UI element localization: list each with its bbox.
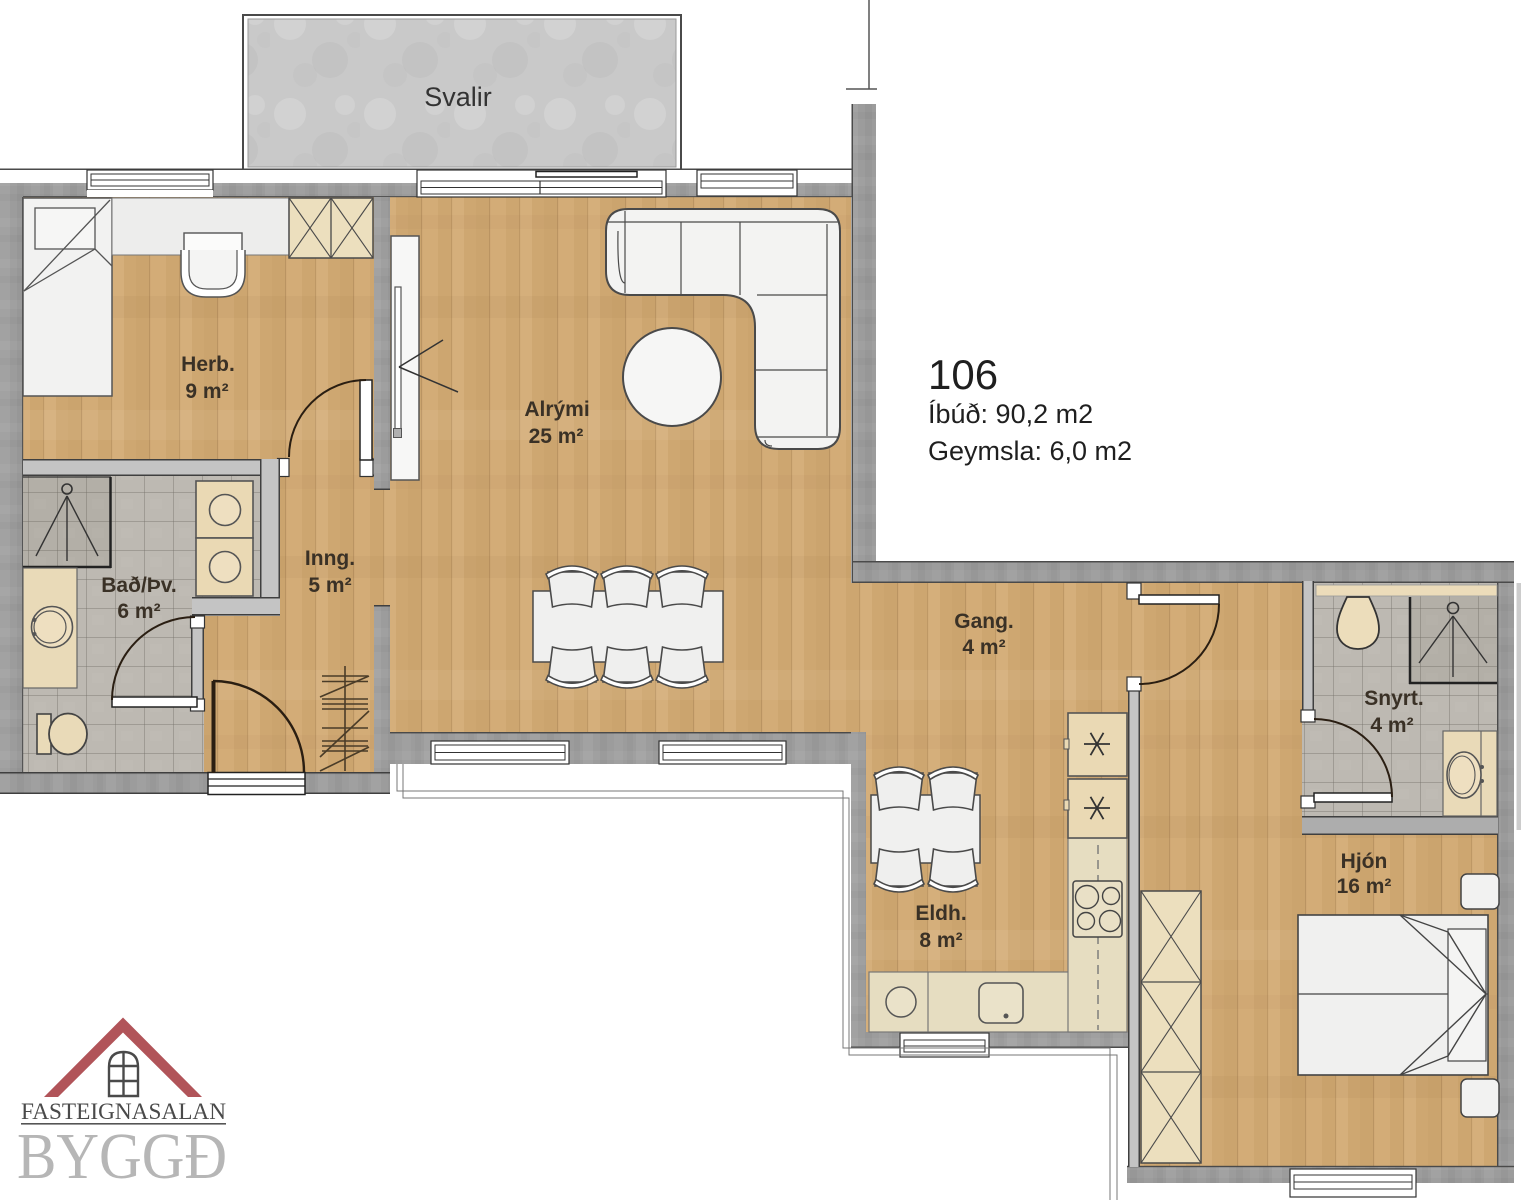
svg-text:BYGGÐ: BYGGÐ <box>17 1120 227 1193</box>
svg-text:Svalir: Svalir <box>424 82 492 112</box>
svg-text:8 m²: 8 m² <box>919 929 962 952</box>
svg-text:16 m²: 16 m² <box>1337 875 1392 898</box>
svg-text:5 m²: 5 m² <box>308 574 351 597</box>
svg-text:4 m²: 4 m² <box>1370 714 1413 737</box>
svg-text:Eldh.: Eldh. <box>915 902 966 925</box>
svg-text:Bað/Þv.: Bað/Þv. <box>101 574 176 597</box>
svg-text:Hjón: Hjón <box>1341 850 1388 873</box>
svg-text:Snyrt.: Snyrt. <box>1364 687 1424 710</box>
svg-text:Gang.: Gang. <box>954 610 1014 633</box>
svg-text:Alrými: Alrými <box>524 398 589 421</box>
svg-text:106: 106 <box>928 351 998 398</box>
svg-text:Geymsla: 6,0 m2: Geymsla: 6,0 m2 <box>928 436 1132 466</box>
svg-text:4 m²: 4 m² <box>962 636 1005 659</box>
svg-text:Íbúð: 90,2 m2: Íbúð: 90,2 m2 <box>928 399 1093 429</box>
svg-text:25 m²: 25 m² <box>529 425 584 448</box>
svg-text:9 m²: 9 m² <box>185 380 228 403</box>
svg-text:Herb.: Herb. <box>181 353 235 376</box>
svg-text:6 m²: 6 m² <box>117 600 160 623</box>
svg-text:Inng.: Inng. <box>305 547 355 570</box>
